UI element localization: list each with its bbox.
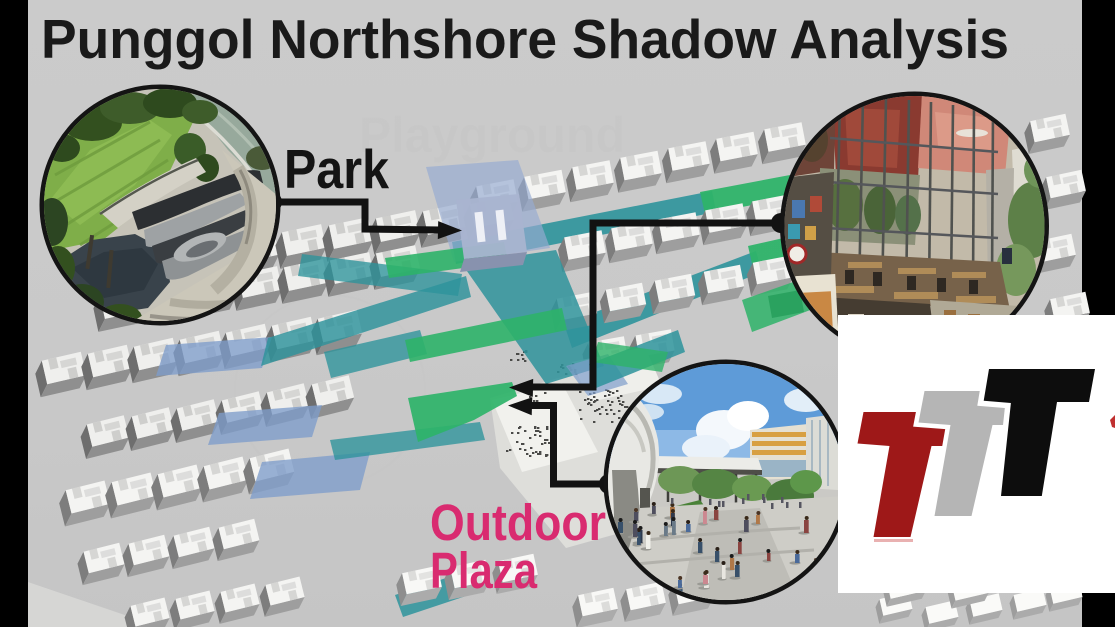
svg-text:Playground: Playground bbox=[359, 107, 625, 163]
svg-text:Plaza: Plaza bbox=[430, 542, 538, 599]
svg-text:Punggol Northshore Shadow Anal: Punggol Northshore Shadow Analysis bbox=[41, 8, 1009, 70]
svg-text:Park: Park bbox=[284, 138, 389, 200]
